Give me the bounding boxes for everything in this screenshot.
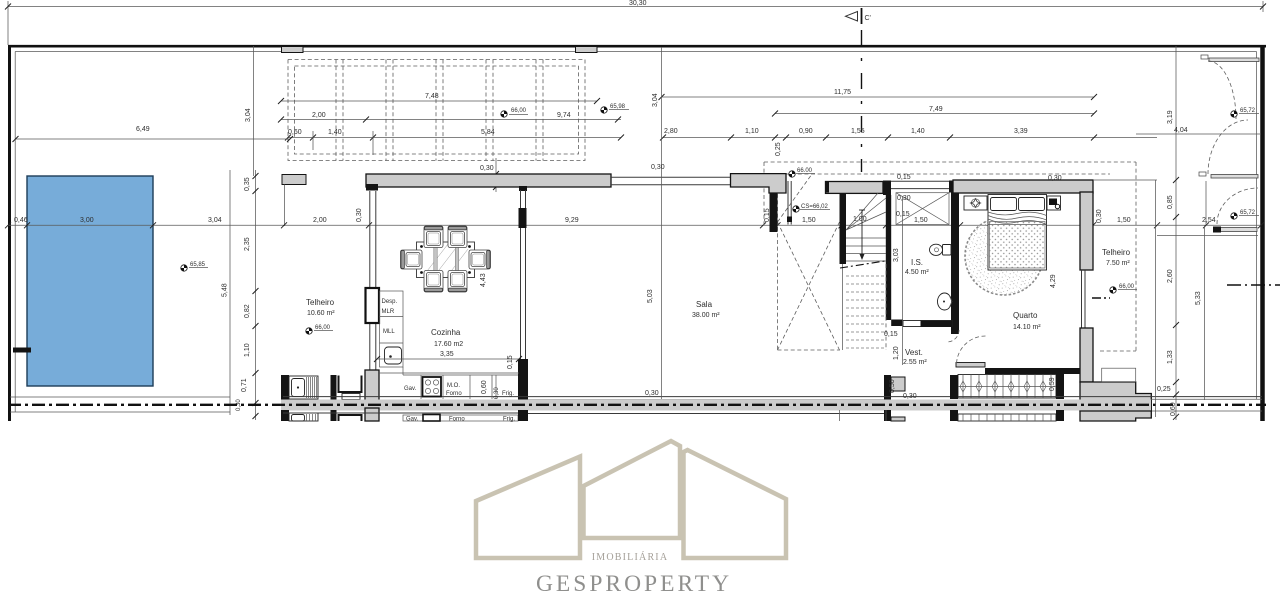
- svg-text:3,19: 3,19: [1167, 110, 1174, 124]
- svg-text:3,35: 3,35: [440, 351, 454, 358]
- svg-text:2,54: 2,54: [1202, 217, 1216, 224]
- svg-text:0,30: 0,30: [903, 393, 917, 400]
- svg-text:0,15: 0,15: [896, 211, 910, 218]
- svg-text:14.10 m²: 14.10 m²: [1013, 324, 1041, 331]
- svg-text:0,30: 0,30: [645, 390, 659, 397]
- svg-text:0,82: 0,82: [244, 304, 251, 318]
- svg-text:7.50 m²: 7.50 m²: [1106, 260, 1130, 267]
- svg-text:1,40: 1,40: [328, 129, 342, 136]
- svg-text:3,04: 3,04: [245, 108, 252, 122]
- svg-text:1,50: 1,50: [802, 217, 816, 224]
- svg-text:Vest.: Vest.: [905, 348, 923, 357]
- svg-text:0,25: 0,25: [775, 142, 782, 156]
- svg-text:MLR: MLR: [382, 309, 395, 315]
- svg-text:3,04: 3,04: [208, 217, 222, 224]
- svg-text:11,75: 11,75: [834, 89, 851, 96]
- svg-text:5,84: 5,84: [481, 129, 495, 136]
- svg-text:Frig.: Frig.: [503, 417, 515, 423]
- svg-text:GESPROPERTY: GESPROPERTY: [536, 571, 732, 593]
- svg-text:0,15: 0,15: [897, 174, 911, 181]
- svg-text:7,48: 7,48: [425, 93, 439, 100]
- svg-text:10.60 m²: 10.60 m²: [307, 310, 335, 317]
- svg-text:4.50 m²: 4.50 m²: [905, 269, 929, 276]
- svg-text:CS=66,02: CS=66,02: [801, 204, 829, 210]
- svg-text:0,30: 0,30: [356, 208, 363, 222]
- svg-text:3,04: 3,04: [652, 93, 659, 107]
- svg-text:0,35: 0,35: [244, 177, 251, 191]
- svg-text:3,39: 3,39: [1014, 128, 1028, 135]
- svg-text:0,59: 0,59: [1049, 377, 1056, 391]
- svg-text:Forno: Forno: [446, 391, 462, 397]
- svg-text:2,80: 2,80: [664, 128, 678, 135]
- svg-text:17.60 m2: 17.60 m2: [434, 341, 463, 348]
- svg-text:3,00: 3,00: [80, 217, 94, 224]
- svg-text:65,72: 65,72: [1240, 210, 1256, 216]
- svg-text:Quarto: Quarto: [1013, 311, 1038, 320]
- svg-text:M.O.: M.O.: [447, 383, 460, 389]
- svg-text:65,72: 65,72: [1240, 108, 1256, 114]
- svg-text:9,29: 9,29: [565, 217, 579, 224]
- svg-text:5,33: 5,33: [1195, 291, 1202, 305]
- svg-text:0,46: 0,46: [14, 217, 28, 224]
- svg-text:0,85: 0,85: [1167, 195, 1174, 209]
- svg-text:IMOBILIÁRIA: IMOBILIÁRIA: [592, 551, 669, 563]
- svg-text:66,00: 66,00: [511, 108, 527, 114]
- svg-text:0,30: 0,30: [494, 387, 500, 399]
- svg-text:0,30: 0,30: [1096, 209, 1103, 223]
- svg-text:C': C': [865, 15, 871, 22]
- svg-text:66.00: 66.00: [797, 168, 813, 174]
- svg-text:Sala: Sala: [696, 300, 713, 309]
- svg-text:0,60: 0,60: [288, 129, 302, 136]
- svg-text:30,30: 30,30: [629, 0, 647, 7]
- svg-text:Telheiro: Telheiro: [1102, 248, 1131, 257]
- svg-text:5,48: 5,48: [222, 283, 229, 297]
- svg-text:9,74: 9,74: [557, 112, 571, 119]
- svg-text:1,10: 1,10: [745, 128, 759, 135]
- svg-text:0,60: 0,60: [481, 380, 488, 394]
- svg-text:I.S.: I.S.: [911, 258, 923, 267]
- svg-text:Cozinha: Cozinha: [431, 328, 461, 337]
- svg-text:0,15: 0,15: [507, 355, 514, 369]
- svg-text:MLL: MLL: [383, 329, 395, 335]
- svg-text:3,03: 3,03: [893, 248, 900, 262]
- svg-text:4,43: 4,43: [480, 273, 487, 287]
- svg-text:65,85: 65,85: [190, 262, 206, 268]
- svg-text:1,10: 1,10: [244, 343, 251, 357]
- svg-text:66,00: 66,00: [1119, 284, 1135, 290]
- svg-text:0,15: 0,15: [884, 331, 898, 338]
- svg-text:6,49: 6,49: [136, 126, 150, 133]
- svg-text:2,00: 2,00: [313, 217, 327, 224]
- svg-text:38.00 m²: 38.00 m²: [692, 312, 720, 319]
- svg-text:0,30: 0,30: [651, 164, 665, 171]
- svg-text:Desp.: Desp.: [382, 299, 398, 305]
- svg-text:1,50: 1,50: [914, 217, 928, 224]
- svg-text:0,30: 0,30: [897, 195, 911, 202]
- svg-text:Gav.: Gav.: [406, 417, 419, 423]
- svg-text:Frig.: Frig.: [502, 391, 514, 397]
- svg-text:2,00: 2,00: [312, 112, 326, 119]
- svg-text:Forno: Forno: [449, 417, 465, 423]
- svg-text:0,60: 0,60: [1170, 402, 1177, 416]
- svg-text:1,33: 1,33: [1167, 350, 1174, 364]
- svg-text:2,35: 2,35: [244, 237, 251, 251]
- svg-text:4,29: 4,29: [1050, 274, 1057, 288]
- svg-text:0,30: 0,30: [1048, 175, 1062, 182]
- svg-text:Gav.: Gav.: [404, 386, 417, 392]
- svg-text:2,60: 2,60: [1167, 269, 1174, 283]
- svg-text:5,03: 5,03: [647, 289, 654, 303]
- svg-text:1,50: 1,50: [1117, 217, 1131, 224]
- svg-text:66,00: 66,00: [315, 325, 331, 331]
- svg-text:2.55 m²: 2.55 m²: [903, 359, 927, 366]
- svg-text:1,55: 1,55: [851, 128, 865, 135]
- svg-text:4,04: 4,04: [1174, 127, 1188, 134]
- svg-text:0,50: 0,50: [889, 379, 896, 393]
- svg-text:65,98: 65,98: [610, 104, 626, 110]
- svg-text:0,71: 0,71: [241, 378, 248, 392]
- svg-text:7,49: 7,49: [929, 106, 943, 113]
- svg-text:0,90: 0,90: [799, 128, 813, 135]
- svg-text:0,25: 0,25: [1157, 386, 1171, 393]
- svg-text:1,20: 1,20: [893, 346, 900, 360]
- svg-text:Telheiro: Telheiro: [306, 298, 335, 307]
- svg-text:0,30: 0,30: [480, 165, 494, 172]
- svg-text:1,40: 1,40: [911, 128, 925, 135]
